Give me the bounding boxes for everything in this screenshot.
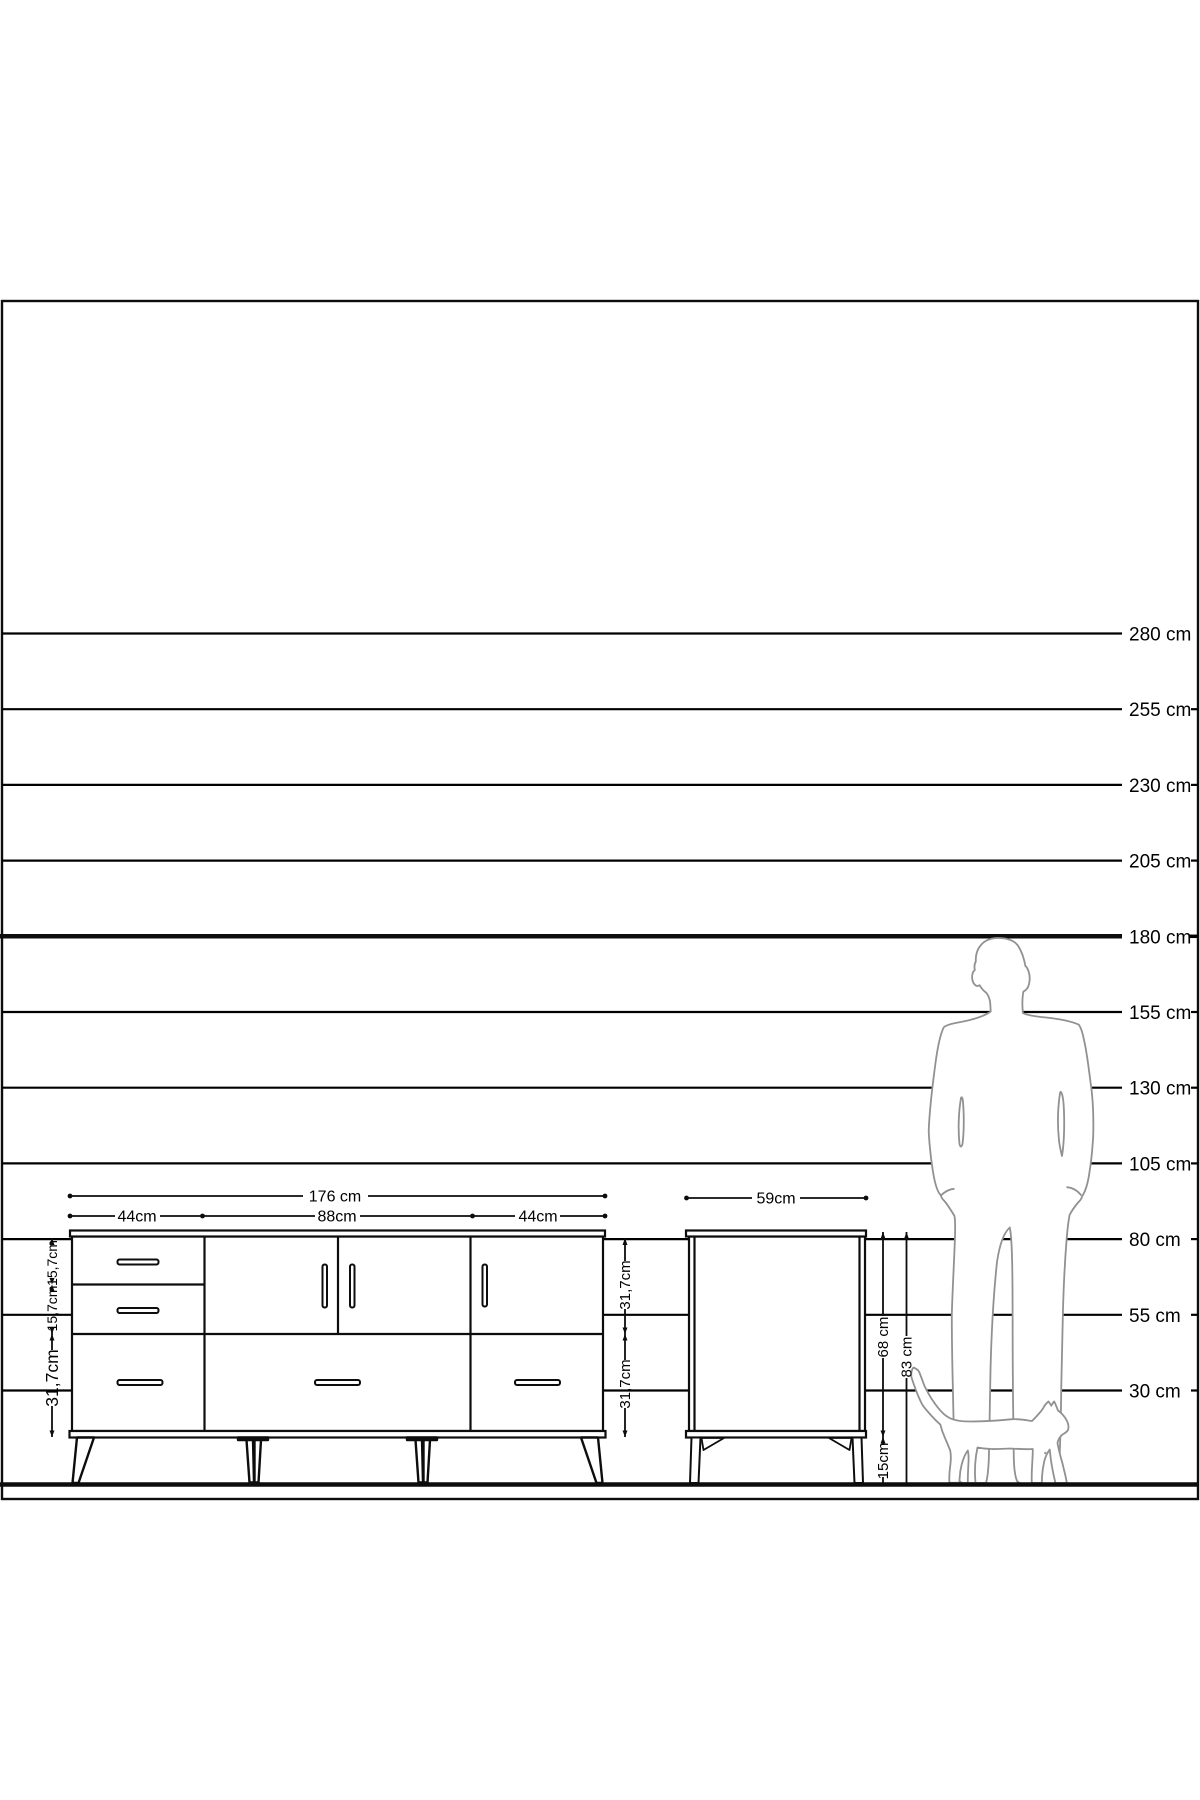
svg-text:31,7cm: 31,7cm — [617, 1260, 634, 1309]
svg-text:105 cm: 105 cm — [1129, 1154, 1191, 1175]
svg-text:205 cm: 205 cm — [1129, 852, 1191, 873]
svg-text:30 cm: 30 cm — [1129, 1382, 1181, 1403]
svg-text:31,7cm: 31,7cm — [42, 1349, 62, 1406]
svg-text:15cm: 15cm — [875, 1443, 892, 1480]
svg-text:31,7cm: 31,7cm — [617, 1359, 634, 1408]
svg-text:255 cm: 255 cm — [1129, 700, 1191, 721]
svg-text:83 cm: 83 cm — [899, 1337, 916, 1378]
svg-text:44cm: 44cm — [117, 1209, 156, 1226]
svg-text:130 cm: 130 cm — [1129, 1079, 1191, 1100]
svg-text:176 cm: 176 cm — [309, 1189, 361, 1206]
svg-text:68 cm: 68 cm — [875, 1317, 892, 1358]
svg-text:280 cm: 280 cm — [1129, 625, 1191, 646]
svg-text:88cm: 88cm — [317, 1209, 356, 1226]
svg-text:230 cm: 230 cm — [1129, 776, 1191, 797]
svg-text:155 cm: 155 cm — [1129, 1003, 1191, 1024]
svg-text:80 cm: 80 cm — [1129, 1230, 1181, 1251]
svg-text:44cm: 44cm — [518, 1209, 557, 1226]
svg-text:15,7cm: 15,7cm — [44, 1286, 60, 1332]
svg-text:59cm: 59cm — [756, 1191, 795, 1208]
svg-text:55 cm: 55 cm — [1129, 1306, 1181, 1327]
svg-text:180 cm: 180 cm — [1129, 927, 1191, 948]
